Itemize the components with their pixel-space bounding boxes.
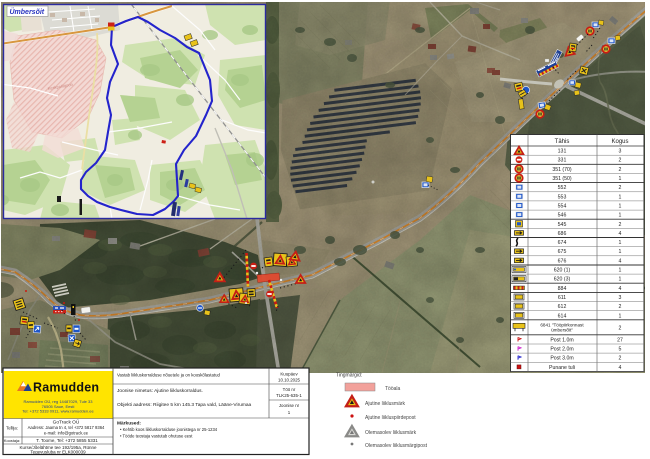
svg-text:Olemasolev liiklusmärk: Olemasolev liiklusmärk (365, 430, 417, 436)
svg-text:Olemasolev liiklusmärgipost: Olemasolev liiklusmärgipost (365, 443, 428, 449)
svg-text:545: 545 (558, 222, 567, 228)
svg-text:1: 1 (619, 277, 622, 283)
svg-text:1: 1 (619, 240, 622, 246)
svg-text:4: 4 (619, 365, 622, 371)
svg-text:TLK25-635-1: TLK25-635-1 (276, 393, 302, 398)
svg-text:e-mail: info@gotrack.ee: e-mail: info@gotrack.ee (44, 430, 89, 435)
svg-text:1: 1 (619, 268, 622, 274)
svg-text:Joonise nr: Joonise nr (279, 403, 300, 408)
svg-text:611: 611 (558, 295, 566, 301)
svg-text:331: 331 (558, 158, 567, 164)
svg-text:351 (70): 351 (70) (552, 167, 572, 173)
svg-text:• Tööde teostaja vastutab ohu: • Tööde teostaja vastutab ohutuse eest (120, 434, 193, 439)
svg-text:5: 5 (619, 347, 622, 353)
svg-text:Aadress: Jaama tn 4, tel +372: Aadress: Jaama tn 4, tel +372 5817 9364 (28, 425, 105, 430)
svg-text:Kogus: Kogus (611, 139, 628, 145)
svg-text:3: 3 (619, 295, 622, 301)
svg-text:Koostaja:: Koostaja: (4, 438, 20, 443)
svg-text:Töö nr: Töö nr (283, 387, 296, 392)
svg-text:1: 1 (619, 249, 622, 255)
svg-text:27: 27 (617, 337, 623, 343)
svg-text:131: 131 (558, 149, 567, 155)
svg-text:4: 4 (619, 258, 622, 264)
svg-text:Tel: +372 5333 0911, www.ramud: Tel: +372 5333 0911, www.ramudden.ee (22, 409, 94, 414)
svg-text:674: 674 (558, 240, 567, 246)
svg-text:• Kehtib koos liikluskorraldu: • Kehtib koos liikluskorralduse jooniste… (120, 427, 218, 432)
svg-text:1: 1 (619, 313, 622, 319)
svg-text:ümbersõit": ümbersõit" (551, 327, 573, 332)
svg-text:4: 4 (619, 231, 622, 237)
svg-text:612: 612 (558, 304, 567, 310)
svg-text:Ramudden: Ramudden (33, 381, 99, 395)
svg-text:2: 2 (619, 167, 622, 173)
svg-text:2: 2 (619, 185, 622, 191)
svg-text:Kuupäev: Kuupäev (280, 372, 298, 377)
svg-text:Tegevusluba nr ELK000039: Tegevusluba nr ELK000039 (30, 450, 86, 455)
svg-text:1: 1 (619, 213, 622, 219)
svg-text:Tellija:: Tellija: (6, 426, 18, 431)
svg-text:1: 1 (619, 194, 622, 200)
svg-text:614: 614 (558, 313, 567, 319)
svg-text:Post 2.0m: Post 2.0m (550, 347, 573, 353)
svg-text:2: 2 (619, 356, 622, 362)
svg-text:T. Toome, Tel: +372 5855 5331: T. Toome, Tel: +372 5855 5331 (36, 438, 98, 443)
svg-text:676: 676 (558, 258, 567, 264)
svg-text:Ajutine liiklusmärk: Ajutine liiklusmärk (365, 401, 406, 407)
svg-text:553: 553 (558, 194, 567, 200)
svg-text:3: 3 (619, 149, 622, 155)
svg-text:1: 1 (619, 176, 622, 182)
svg-text:2: 2 (619, 325, 622, 331)
svg-text:Punane tuli: Punane tuli (549, 365, 575, 371)
svg-text:Post 3.0m: Post 3.0m (550, 356, 573, 362)
svg-text:10.10.2025: 10.10.2025 (278, 378, 301, 383)
svg-text:Ajutine liikluspiirdepost: Ajutine liikluspiirdepost (365, 415, 416, 421)
svg-text:552: 552 (558, 185, 567, 191)
svg-text:Tööala: Tööala (385, 386, 401, 392)
svg-text:2: 2 (619, 222, 622, 228)
svg-text:2: 2 (619, 158, 622, 164)
svg-text:1: 1 (619, 204, 622, 210)
svg-text:Tingmärgid:: Tingmärgid: (336, 373, 362, 379)
svg-text:Objekti aadress: Riigitee 5 km: Objekti aadress: Riigitee 5 km 145.3 Tap… (117, 402, 252, 408)
svg-text:Joonise nimetus: Ajutine liikl: Joonise nimetus: Ajutine liikluskorraldu… (117, 388, 203, 394)
svg-text:554: 554 (558, 204, 567, 210)
svg-text:2: 2 (619, 304, 622, 310)
svg-text:Ümbersõit: Ümbersõit (10, 7, 45, 16)
svg-text:Tähis: Tähis (555, 139, 570, 145)
svg-text:546: 546 (558, 213, 567, 219)
svg-text:4: 4 (619, 286, 622, 292)
svg-text:686: 686 (558, 231, 567, 237)
svg-text:Vastab liikluskorralduse nõuet: Vastab liikluskorralduse nõuetele ja on … (117, 373, 220, 378)
svg-text:Märkused:: Märkused: (117, 421, 141, 427)
svg-text:620 (1): 620 (1) (554, 268, 571, 274)
svg-text:620 (3): 620 (3) (554, 277, 571, 283)
svg-text:351 (50): 351 (50) (552, 176, 572, 182)
svg-text:Post 1.0m: Post 1.0m (550, 337, 573, 343)
svg-text:884: 884 (558, 286, 567, 292)
svg-text:675: 675 (558, 249, 567, 255)
